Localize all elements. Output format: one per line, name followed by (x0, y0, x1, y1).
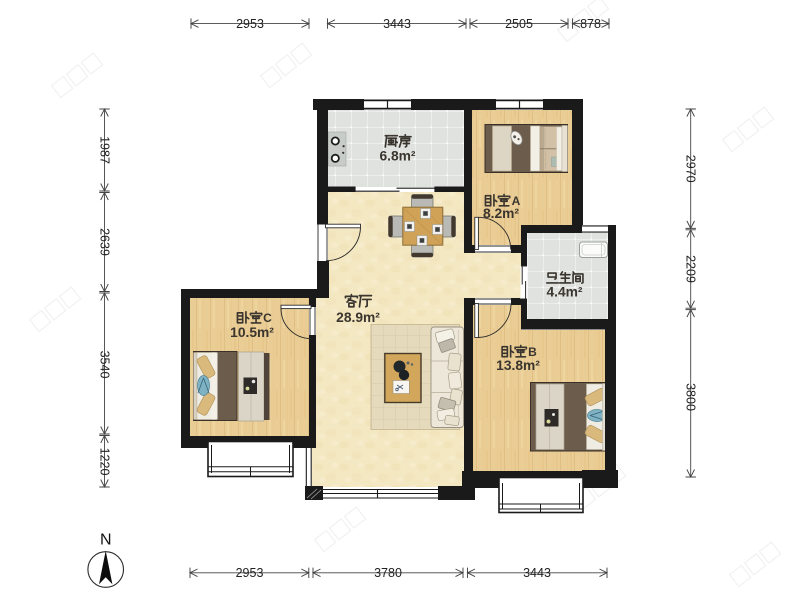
svg-text:2209: 2209 (684, 255, 698, 283)
svg-text:28.9m²: 28.9m² (336, 310, 380, 325)
svg-text:2953: 2953 (236, 566, 264, 580)
svg-text:2953: 2953 (236, 17, 264, 31)
svg-text:4.4m²: 4.4m² (546, 285, 582, 300)
svg-text:1220: 1220 (97, 448, 111, 476)
svg-text:3443: 3443 (523, 566, 551, 580)
svg-text:6.8m²: 6.8m² (379, 149, 415, 164)
svg-text:1987: 1987 (97, 136, 111, 164)
svg-text:2505: 2505 (505, 17, 533, 31)
svg-text:10.5m²: 10.5m² (230, 325, 274, 340)
svg-text:8.2m²: 8.2m² (483, 206, 519, 221)
svg-text:3800: 3800 (684, 383, 698, 411)
svg-text:3443: 3443 (383, 17, 411, 31)
svg-text:13.8m²: 13.8m² (496, 358, 540, 373)
svg-text:2970: 2970 (684, 155, 698, 183)
svg-text:3540: 3540 (97, 351, 111, 379)
svg-text:2639: 2639 (97, 228, 111, 256)
svg-text:878: 878 (580, 17, 601, 31)
svg-text:C: C (263, 311, 272, 325)
svg-text:N: N (100, 532, 112, 549)
svg-text:3780: 3780 (374, 566, 402, 580)
svg-text:B: B (528, 345, 537, 359)
